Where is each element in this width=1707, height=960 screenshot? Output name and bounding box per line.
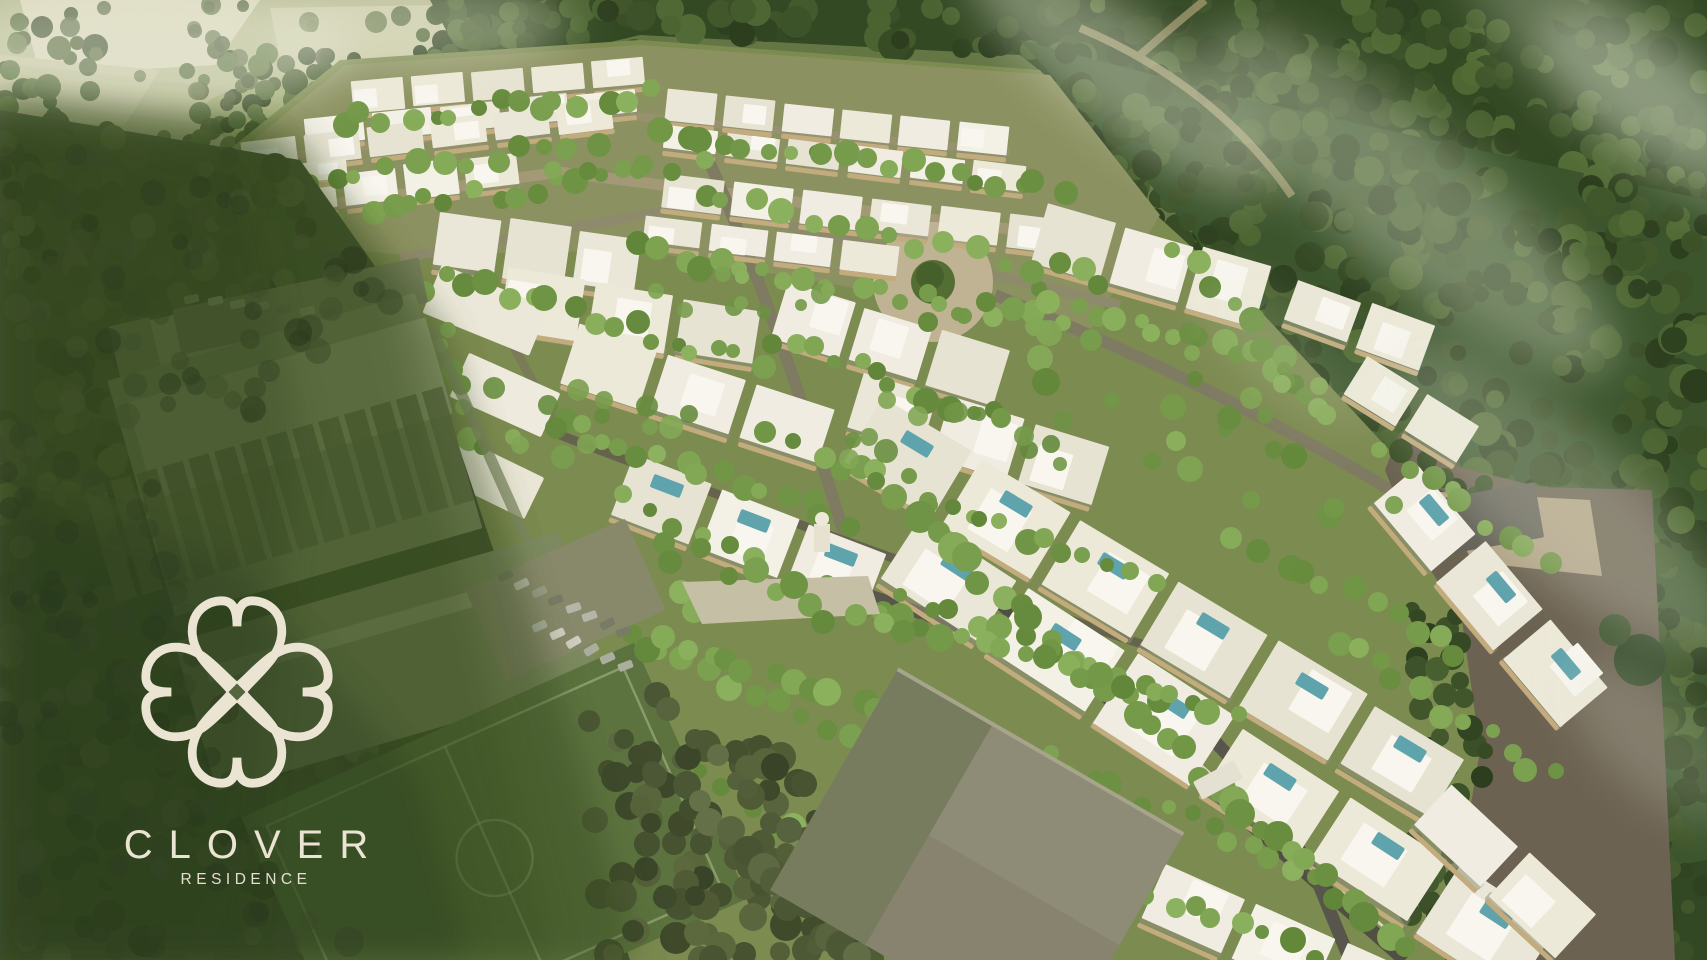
svg-text:RESIDENCE: RESIDENCE [181, 871, 312, 888]
svg-text:CLOVER: CLOVER [124, 823, 385, 867]
